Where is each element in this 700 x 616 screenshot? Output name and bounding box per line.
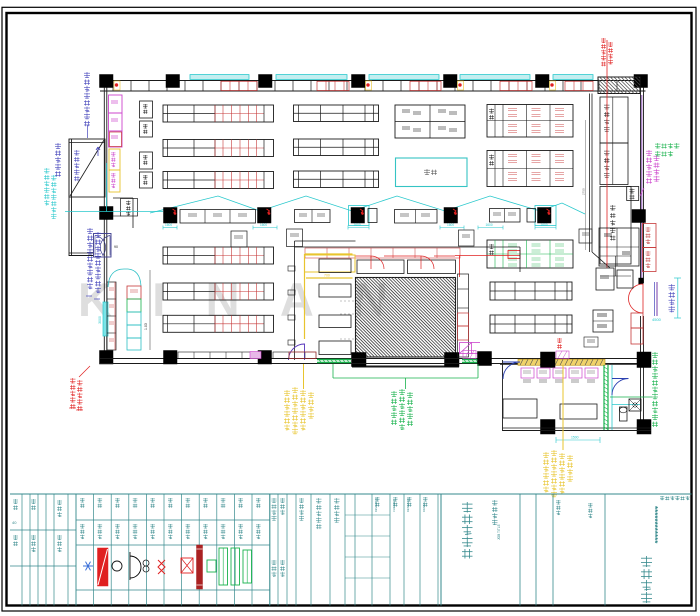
svg-text:700: 700 [324, 274, 330, 278]
svg-text:1600: 1600 [447, 223, 454, 227]
svg-text:1500: 1500 [571, 436, 579, 440]
svg-text:1600: 1600 [541, 223, 548, 227]
svg-text:3000: 3000 [98, 316, 102, 324]
svg-text:2750: 2750 [582, 188, 586, 195]
svg-text:************: ************ [650, 506, 659, 544]
svg-text:1.03: 1.03 [144, 323, 148, 330]
svg-text:1600: 1600 [486, 223, 493, 227]
svg-text:1600: 1600 [354, 223, 361, 227]
svg-text:90: 90 [114, 245, 118, 249]
svg-text:DESIGNED: DESIGNED [406, 498, 410, 512]
svg-text:1600: 1600 [260, 223, 267, 227]
svg-text:CHECKED: CHECKED [392, 499, 396, 512]
svg-text:JOB TITLE: JOB TITLE [497, 524, 501, 540]
svg-text:40: 40 [12, 520, 17, 525]
svg-text:1600: 1600 [165, 223, 172, 227]
svg-text:4500: 4500 [652, 317, 662, 322]
svg-text:REVIEWED: REVIEWED [374, 498, 378, 512]
svg-text:DRAWN: DRAWN [422, 502, 426, 512]
